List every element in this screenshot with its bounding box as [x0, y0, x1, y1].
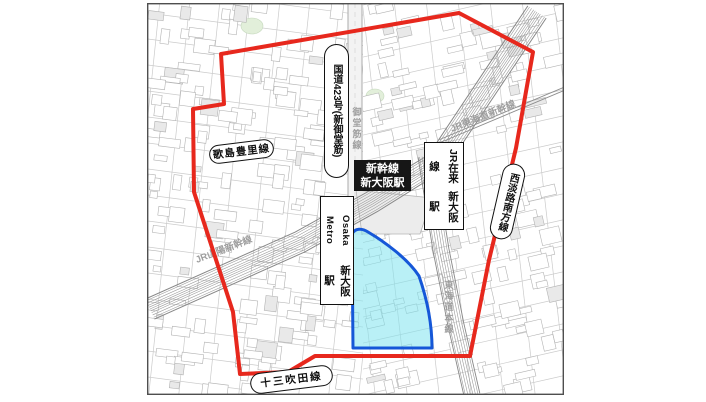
label-route-423: 国道423号(新御堂筋): [324, 44, 349, 178]
label-osaka-metro-shin-osaka-station: Osaka Metro 新大阪駅: [320, 196, 354, 305]
jr-station-name: 新大阪駅: [424, 187, 462, 226]
jr-line-name: JR在来線: [424, 146, 462, 187]
label-jr-conventional-shin-osaka-station: JR在来線 新大阪駅: [424, 142, 464, 230]
shinkansen-line2: 新大阪駅: [361, 176, 405, 190]
metro-operator: Osaka Metro: [321, 200, 353, 260]
map-figure: JR山陽新幹線JR東海道新幹線東海道本線御堂筋線 国道423号(新御堂筋) 歌島…: [0, 0, 706, 402]
svg-text:東海道本線: 東海道本線: [444, 279, 454, 334]
label-shinkansen-shin-osaka-station: 新幹線 新大阪駅: [354, 160, 411, 191]
metro-station-name: 新大阪駅: [321, 260, 353, 301]
shinkansen-line1: 新幹線: [366, 162, 399, 176]
